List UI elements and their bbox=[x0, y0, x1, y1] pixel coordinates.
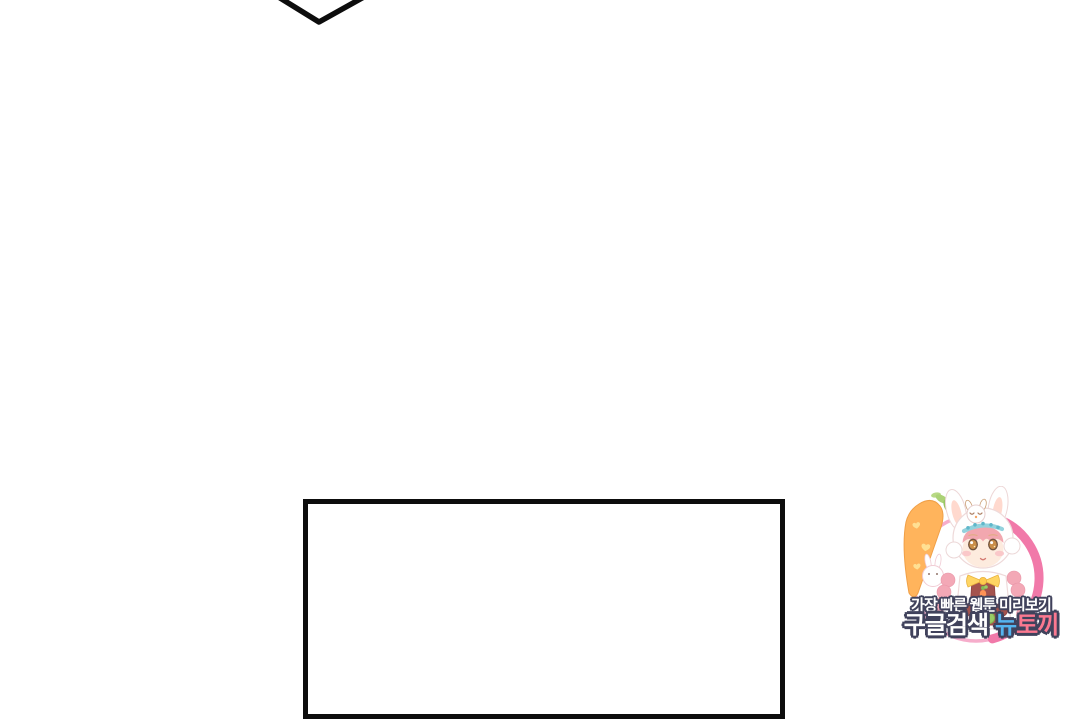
speech-bubble-tail-icon bbox=[240, 0, 410, 31]
watermark-text: 가장 빠른 웹툰 미리보기 구글검색뉴토끼 bbox=[904, 598, 1059, 639]
newtoki-watermark: 가장 빠른 웹툰 미리보기 구글검색뉴토끼 bbox=[888, 486, 1074, 668]
watermark-brand-first: 뉴 bbox=[995, 612, 1016, 639]
watermark-brand-line: 구글검색뉴토끼 bbox=[904, 614, 1059, 638]
watermark-tagline: 가장 빠른 웹툰 미리보기 bbox=[904, 598, 1059, 613]
webtoon-page: 가장 빠른 웹툰 미리보기 구글검색뉴토끼 bbox=[0, 0, 1080, 675]
blush-right bbox=[995, 551, 1004, 557]
comic-panel bbox=[303, 499, 785, 719]
watermark-brand-rest: 토끼 bbox=[1016, 612, 1058, 639]
mini-bunny-icon bbox=[923, 554, 944, 587]
watermark-search-label: 구글검색 bbox=[904, 612, 988, 639]
earmuff-left bbox=[946, 542, 962, 558]
blush-left bbox=[962, 551, 971, 557]
earmuff-right bbox=[1004, 538, 1020, 554]
bunny-mascot-illustration bbox=[888, 486, 1074, 668]
